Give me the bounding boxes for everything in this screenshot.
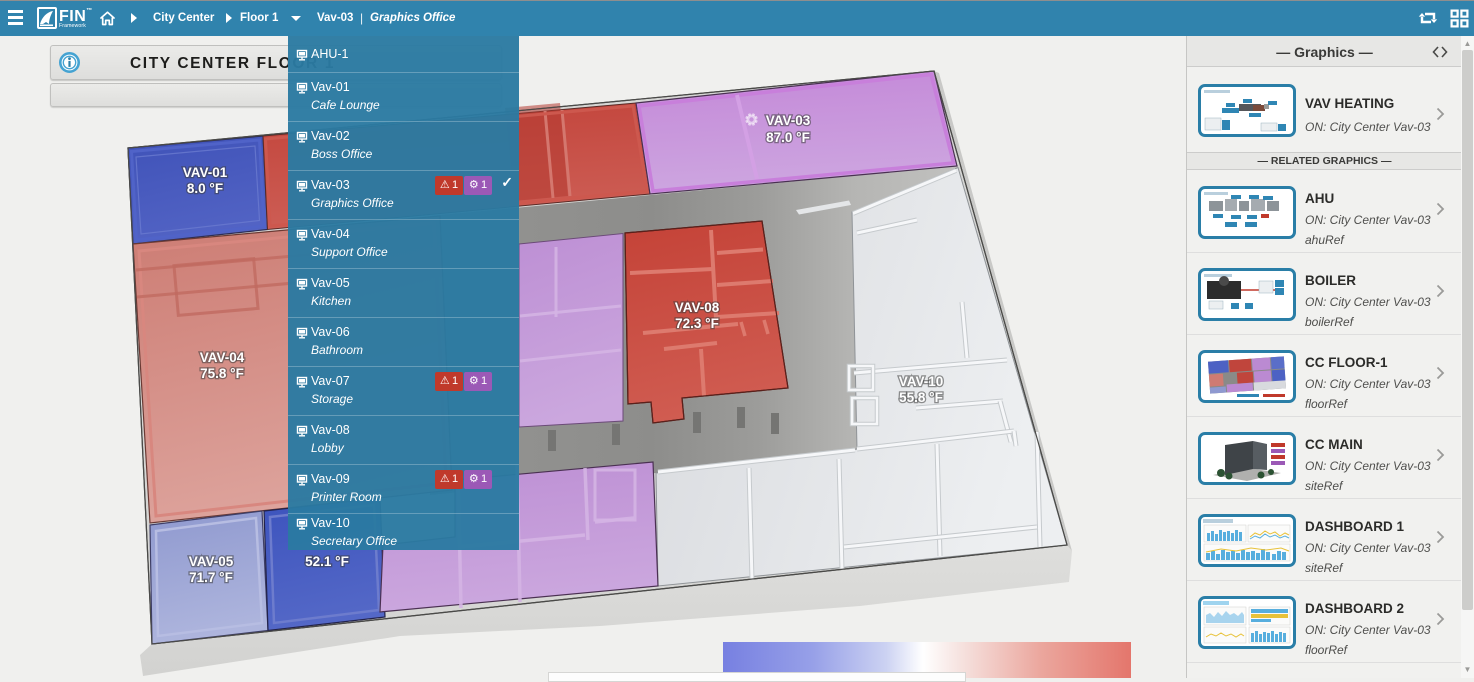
svg-text:87.0 °F: 87.0 °F: [766, 130, 810, 145]
svg-text:72.3 °F: 72.3 °F: [675, 316, 719, 331]
svg-text:55.8 °F: 55.8 °F: [899, 390, 943, 405]
svg-text:71.7 °F: 71.7 °F: [189, 570, 233, 585]
svg-text:75.8 °F: 75.8 °F: [200, 366, 244, 381]
svg-text:VAV-10: VAV-10: [899, 374, 944, 389]
svg-text:52.1 °F: 52.1 °F: [305, 554, 349, 569]
svg-text:8.0 °F: 8.0 °F: [187, 181, 223, 196]
svg-text:VAV-08: VAV-08: [675, 300, 720, 315]
svg-text:VAV-04: VAV-04: [200, 350, 245, 365]
svg-text:VAV-01: VAV-01: [183, 165, 228, 180]
svg-text:VAV-05: VAV-05: [189, 554, 234, 569]
svg-text:VAV-03: VAV-03: [766, 113, 811, 128]
